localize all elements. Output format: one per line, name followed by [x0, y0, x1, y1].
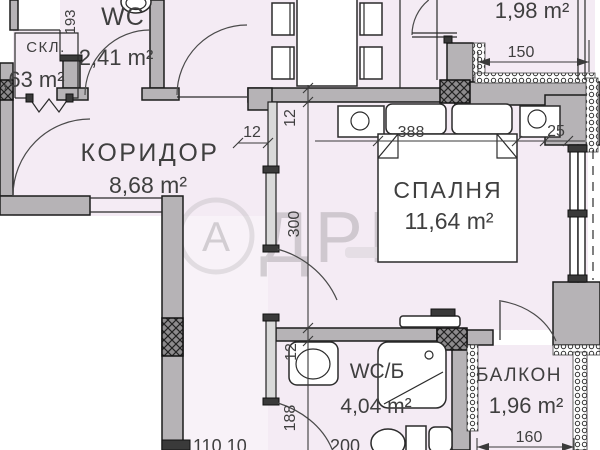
dim-160: 160 — [516, 429, 543, 446]
folding-door-post-left — [26, 94, 33, 102]
floor-plan-page: А ДРЕС — [0, 0, 600, 450]
corridor-area: 8,68 m² — [109, 172, 187, 198]
chair — [360, 3, 382, 35]
wall-corridor-bottom — [0, 196, 90, 215]
corridor-label: КОРИДОР — [81, 139, 220, 167]
tv — [431, 309, 455, 316]
dim-bottom-center: 200 — [330, 436, 360, 450]
nightstand-left — [338, 106, 384, 137]
window-mullion-mid — [568, 210, 587, 217]
insulation-balcony-left — [467, 345, 478, 431]
bedroom-door-leaf — [266, 172, 276, 248]
folding-door-post-right — [66, 94, 73, 102]
wall-bottom-cap — [162, 440, 190, 450]
wall-bathroom-top — [276, 328, 437, 341]
insulation-top-horizontal — [475, 73, 595, 83]
wall-balcony-door-left — [467, 330, 493, 345]
storage-area: 1,63 m² — [0, 67, 65, 92]
column-top-right — [440, 80, 470, 103]
chair — [272, 3, 294, 35]
floor-plan: А ДРЕС — [0, 0, 600, 450]
dim-12-vertical: 12 — [282, 109, 299, 127]
dim-300: 300 — [286, 211, 303, 238]
wc-top-label: WC — [101, 3, 145, 31]
wall-bedroom-left — [268, 102, 277, 172]
bedroom-label: СПАЛНЯ — [393, 177, 502, 203]
dim-12-horizontal: 12 — [243, 124, 261, 141]
insulation-right-top — [586, 78, 598, 152]
insulation-top-vertical — [473, 43, 485, 77]
chair — [360, 47, 382, 79]
dim-188: 188 — [282, 405, 299, 432]
window-mullion-bottom — [568, 275, 587, 282]
toilet-bowl — [371, 429, 405, 450]
toilet-tank — [406, 426, 426, 450]
dim-25: 25 — [547, 123, 565, 140]
bathroom-door-leaf — [266, 320, 276, 400]
watermark-logo-letter: А — [202, 213, 230, 260]
wc-top-area: 2,41 m² — [79, 45, 154, 70]
wall-balcony-top-left — [447, 43, 473, 82]
balcony-bottom-label: БАЛКОН — [476, 365, 562, 386]
window-mullion-top — [568, 145, 587, 152]
dim-150: 150 — [508, 44, 535, 61]
wall-top-left — [10, 0, 18, 30]
bedroom-door-cap-bottom — [263, 245, 279, 252]
wall-dining-bottom — [248, 88, 455, 102]
bedroom-area: 11,64 m² — [404, 208, 493, 234]
dim-12-bathroom: 12 — [283, 343, 300, 361]
bedroom-door-cap-top — [263, 166, 279, 173]
wall-bedroom-bottomright — [553, 282, 600, 345]
bathroom-label: WC/Б — [350, 360, 405, 383]
pillow-right — [452, 104, 512, 134]
storage-label: СКЛ. — [26, 39, 66, 56]
bathroom-door-cap-top — [263, 314, 279, 321]
chair — [272, 47, 294, 79]
bathroom-area: 4,04 m² — [340, 395, 411, 418]
wall-wc-right — [150, 0, 164, 88]
tv-shelf — [400, 316, 460, 327]
dim-bottom-left: 110 10 — [193, 436, 247, 450]
balcony-top-area: 1,98 m² — [495, 0, 570, 23]
balcony-bottom-area: 1,96 m² — [489, 393, 564, 418]
wall-wc-right-base — [142, 88, 179, 100]
insulation-balcony-right — [573, 352, 587, 450]
dim-193: 193 — [62, 9, 79, 34]
column-left-bottom — [162, 318, 183, 356]
dim-388: 388 — [398, 124, 425, 141]
dining-table — [297, 0, 357, 86]
boiler — [429, 427, 452, 450]
bathroom-door-cap-bottom — [263, 398, 279, 405]
